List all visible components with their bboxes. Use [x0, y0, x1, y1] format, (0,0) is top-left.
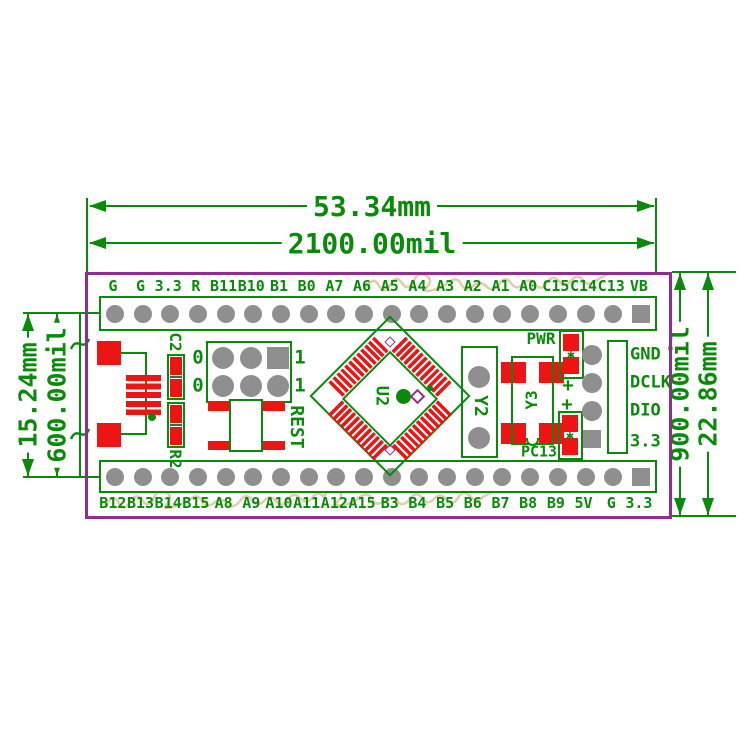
usb-pad [97, 341, 121, 365]
pin-hole [355, 468, 373, 486]
boot1-label: 1 [294, 377, 305, 396]
pin-label: G [127, 279, 155, 294]
pin-hole [189, 305, 207, 323]
pin-hole [327, 305, 345, 323]
pin-hole [577, 305, 595, 323]
pin-label: B13 [127, 496, 155, 511]
pin-slot [489, 468, 517, 486]
reset-label: REST [287, 405, 305, 448]
pin-slot [599, 468, 627, 486]
usb-pins [126, 375, 161, 415]
swd-outline [607, 340, 628, 454]
pin-label: B14 [154, 496, 182, 511]
pin-label: 3.3 [625, 496, 653, 511]
swd-pad-square [583, 430, 601, 448]
extension-line-right [655, 198, 657, 274]
pcb-dimension-diagram: 53.34mm 2100.00mil 15.24mm 600.00mil 900… [0, 0, 750, 750]
pwr-label: PWR [527, 331, 556, 347]
pin-label: A0 [514, 279, 542, 294]
pin-slot [101, 305, 129, 323]
r2-label: R2 [167, 449, 183, 468]
pin-label: B10 [237, 279, 265, 294]
pin-hole [161, 305, 179, 323]
pin-slot [350, 305, 378, 323]
pin-hole [327, 468, 345, 486]
pin-slot [212, 305, 240, 323]
bottom-pin-label-row: B12B13B14B15A8A9A10A11A12A15B3B4B5B6B7B8… [99, 496, 657, 511]
y2-label: Y2 [471, 395, 489, 417]
pin-label: 5V [570, 496, 598, 511]
boot-pad [212, 347, 234, 369]
pin-slot [544, 468, 572, 486]
pin-hole [410, 468, 428, 486]
reset-body [229, 399, 263, 452]
pin-slot [599, 305, 627, 323]
pin-slot [156, 305, 184, 323]
pin-label: A3 [431, 279, 459, 294]
usb-trace [121, 352, 147, 354]
pin-hole [106, 468, 124, 486]
boot1-label: 1 [294, 349, 305, 368]
top-pin-label-row: GG3.3RB11B10B1B0A7A6A5A4A3A2A1A0C15C14C1… [99, 279, 657, 294]
arrow-right-icon [637, 237, 654, 249]
pin-slot [461, 305, 489, 323]
pin-label: B1 [265, 279, 293, 294]
pin-slot [406, 468, 434, 486]
swd-pad [582, 345, 602, 365]
boot0-label: 0 [192, 377, 203, 396]
pin-hole [493, 468, 511, 486]
pin-hole [521, 468, 539, 486]
pin-hole [604, 305, 622, 323]
pin-slot [461, 468, 489, 486]
led-star-icon: ✱ [566, 430, 574, 443]
pin-slot [239, 305, 267, 323]
pin-hole [493, 305, 511, 323]
pin-label: G [99, 279, 127, 294]
swd-pad [582, 373, 602, 393]
pin-hole [632, 305, 650, 323]
pin-label: A15 [348, 496, 376, 511]
pin-hole [134, 468, 152, 486]
r2-midline [170, 424, 182, 426]
pin-label: B0 [293, 279, 321, 294]
pin-slot [433, 305, 461, 323]
pin-slot [572, 305, 600, 323]
mcu-label: U2 [373, 386, 390, 406]
pin-label: B12 [99, 496, 127, 511]
boot-pad [240, 347, 262, 369]
pin-hole [300, 305, 318, 323]
pin-hole [549, 468, 567, 486]
pin-label: A8 [210, 496, 238, 511]
pin-hole [244, 468, 262, 486]
dim-label-600mil: 600.00mil [45, 322, 70, 467]
dim-label-22mm: 22.86mm [696, 336, 721, 451]
pin-hole [106, 305, 124, 323]
pin-slot [184, 305, 212, 323]
pin-label: A2 [459, 279, 487, 294]
swd-label-dio: DIO [630, 403, 661, 420]
pin-hole [189, 468, 207, 486]
pin-label: B9 [542, 496, 570, 511]
dim-label-15mm: 15.24mm [16, 337, 41, 452]
arrow-up-icon [22, 314, 34, 331]
pin-label: B8 [514, 496, 542, 511]
pin-slot [267, 305, 295, 323]
r2-pad [170, 405, 182, 423]
y3-label: Y3 [524, 390, 540, 409]
arrow-right-icon [637, 200, 654, 212]
pin-slot [627, 305, 655, 323]
arrow-down-icon [22, 459, 34, 476]
pin-label: G [597, 496, 625, 511]
dim-label-2100mil: 2100.00mil [282, 230, 463, 258]
pin-hole [466, 305, 484, 323]
boot-pad-square [267, 347, 289, 369]
r2-pad [170, 427, 182, 445]
pin-label: B5 [431, 496, 459, 511]
pin-label: A5 [376, 279, 404, 294]
reset-leg [261, 402, 285, 411]
pin-hole [244, 305, 262, 323]
pin-label: B11 [210, 279, 238, 294]
pin-label: A10 [265, 496, 293, 511]
pin-slot [129, 468, 157, 486]
swd-label-gnd: GND [630, 347, 661, 364]
pin-label: A12 [321, 496, 349, 511]
pin-slot [212, 468, 240, 486]
pin-slot [267, 468, 295, 486]
pin-slot [350, 468, 378, 486]
c2-midline [170, 376, 182, 378]
usb-dot [148, 413, 156, 421]
c2-label: C2 [167, 332, 183, 351]
y2-pad [468, 427, 490, 449]
swd-label-33: 3.3 [630, 434, 661, 451]
pin-slot [323, 468, 351, 486]
pin-label: B15 [182, 496, 210, 511]
pin-label: A7 [321, 279, 349, 294]
pin-slot [489, 305, 517, 323]
pin-slot [184, 468, 212, 486]
pin-hole [217, 468, 235, 486]
pin-slot [516, 305, 544, 323]
arrow-down-icon [674, 498, 686, 515]
pin-hole [134, 305, 152, 323]
y2-pad [468, 366, 490, 388]
led-star-icon: ✱ [567, 349, 575, 362]
pin-hole [300, 468, 318, 486]
pin-slot [433, 468, 461, 486]
swd-pad [582, 401, 602, 421]
c2-pad [170, 357, 182, 375]
pin-hole [604, 468, 622, 486]
dim-label-53mm: 53.34mm [307, 193, 437, 221]
pin-label: A9 [237, 496, 265, 511]
usb-pad [97, 423, 121, 447]
arrow-up-icon [702, 273, 714, 290]
pin-slot [572, 468, 600, 486]
pin-label: A4 [404, 279, 432, 294]
pin-slot [101, 468, 129, 486]
c2-pad [170, 379, 182, 397]
pin-hole [632, 468, 650, 486]
pin-label: B4 [404, 496, 432, 511]
boot-pad [267, 375, 289, 397]
arrow-up-icon [674, 273, 686, 290]
pin-slot [544, 305, 572, 323]
pin-hole [549, 305, 567, 323]
pin-hole [272, 468, 290, 486]
pin-hole [466, 468, 484, 486]
pin-label: A1 [487, 279, 515, 294]
pin-hole [438, 305, 456, 323]
arrow-left-icon [89, 237, 106, 249]
pin-slot [627, 468, 655, 486]
pc13-label: PC13 [521, 445, 557, 460]
pin-hole [272, 305, 290, 323]
boot-pad [212, 375, 234, 397]
pin-slot [295, 305, 323, 323]
pin-hole [577, 468, 595, 486]
pin-label: C13 [597, 279, 625, 294]
tick-bottom [672, 515, 736, 517]
pin-label: B3 [376, 496, 404, 511]
pin-slot [295, 468, 323, 486]
arrow-down-icon [702, 498, 714, 515]
pin-label: B6 [459, 496, 487, 511]
pin-hole [438, 468, 456, 486]
pin-hole [410, 305, 428, 323]
pin-slot [406, 305, 434, 323]
pin-label: 3.3 [154, 279, 182, 294]
pin-label: VB [625, 279, 653, 294]
usb-trace [121, 433, 147, 435]
pin-slot [516, 468, 544, 486]
pin-hole [161, 468, 179, 486]
reset-leg [261, 441, 285, 450]
pin-label: A6 [348, 279, 376, 294]
boot0-label: 0 [192, 349, 203, 368]
swd-label-dclk: DCLK [630, 375, 671, 392]
pin-slot [129, 305, 157, 323]
pin-hole [521, 305, 539, 323]
pin-label: A11 [293, 496, 321, 511]
pin-label: C15 [542, 279, 570, 294]
boot-pad [240, 375, 262, 397]
pin-label: C14 [570, 279, 598, 294]
pin-slot [323, 305, 351, 323]
pin-label: B7 [487, 496, 515, 511]
pin-slot [156, 468, 184, 486]
arrow-left-icon [89, 200, 106, 212]
pin-slot [239, 468, 267, 486]
pin-hole [217, 305, 235, 323]
mcu-small-dot [427, 385, 433, 391]
pin-label: R [182, 279, 210, 294]
pin-hole [355, 305, 373, 323]
